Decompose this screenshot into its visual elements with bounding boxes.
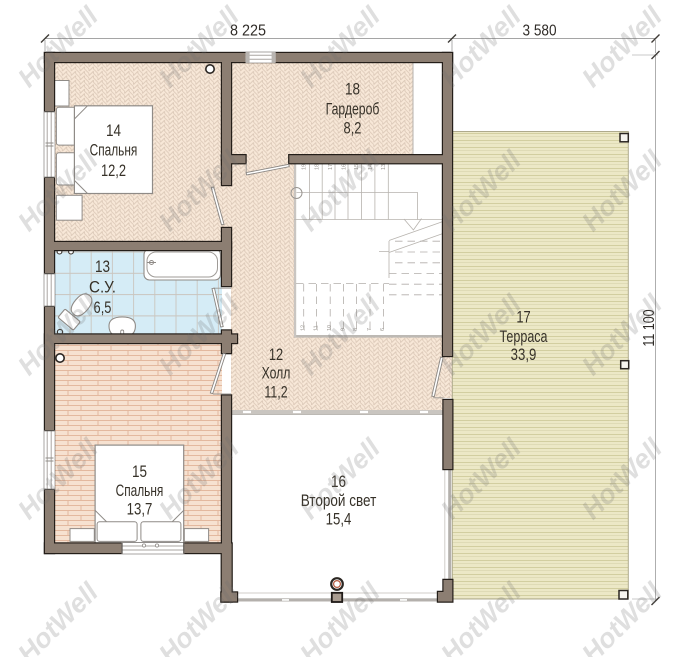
svg-text:33,9: 33,9	[511, 346, 537, 365]
svg-text:12,2: 12,2	[101, 163, 126, 181]
svg-text:19: 19	[302, 164, 308, 170]
svg-text:14: 14	[106, 122, 121, 141]
svg-text:11,2: 11,2	[264, 384, 287, 402]
svg-text:18: 18	[314, 164, 320, 170]
svg-text:3 580: 3 580	[523, 23, 557, 40]
svg-text:Спальня: Спальня	[116, 482, 164, 500]
svg-text:17: 17	[328, 164, 334, 170]
svg-text:15,4: 15,4	[326, 510, 352, 529]
svg-text:12: 12	[269, 347, 283, 365]
svg-text:12: 12	[301, 325, 307, 331]
svg-text:6: 6	[380, 328, 386, 331]
svg-text:Спальня: Спальня	[90, 142, 138, 160]
svg-text:11: 11	[313, 325, 319, 331]
svg-text:13: 13	[95, 258, 110, 277]
svg-text:С.У.: С.У.	[89, 279, 116, 297]
svg-text:8,2: 8,2	[344, 120, 362, 138]
svg-text:13,7: 13,7	[127, 500, 153, 519]
svg-text:18: 18	[345, 80, 360, 99]
svg-text:Холл: Холл	[262, 365, 291, 383]
svg-text:Гардероб: Гардероб	[326, 101, 380, 119]
svg-text:Терраса: Терраса	[499, 328, 548, 346]
svg-text:15: 15	[132, 463, 147, 482]
